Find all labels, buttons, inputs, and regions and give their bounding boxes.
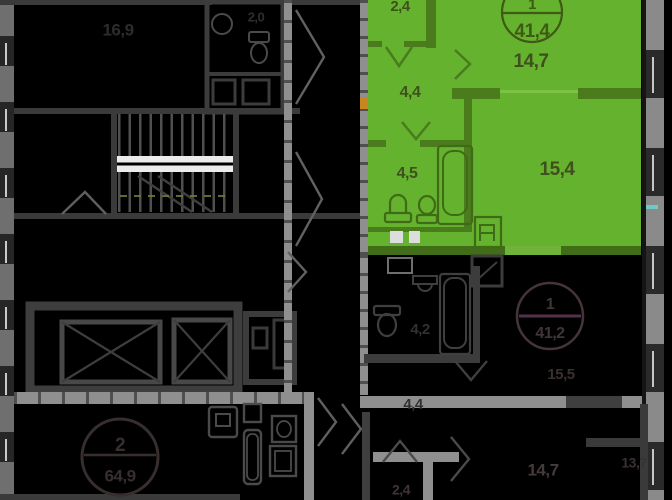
room-area-label: 13,7 [621,455,647,471]
room-area-label: 14,7 [527,460,558,479]
unit-badge-type: 1 [528,0,536,13]
wall-segment [14,108,300,114]
wall-segment [404,41,436,47]
highlighted-apartment [368,0,641,255]
room-area-label: 4,4 [400,84,421,101]
wall-segment [368,140,386,147]
green-unit-left-wall [360,0,368,255]
floor-plan-canvas: 1 41,4 2,4 14,7 4,4 4,5 15,4 16,9 2,0 2 … [0,0,672,500]
unit-badge-type: 2 [115,435,125,456]
balcony-opening [505,246,561,255]
wall-segment [423,452,433,500]
wall-segment [292,213,360,219]
room-area-label: 4,4 [403,396,424,413]
wall-segment [14,392,312,404]
unit-badge-type: 1 [546,296,555,313]
room-area-label: 15,5 [547,366,574,383]
wall-segment [368,41,382,47]
wall-segment [0,0,212,5]
wall-segment [364,354,480,363]
room-area-label: 4,5 [397,165,418,182]
stair-landing-bar [117,156,233,163]
room-area-label: 16,9 [102,20,133,39]
floor-plan: 1 41,4 2,4 14,7 4,4 4,5 15,4 16,9 2,0 2 … [0,0,672,500]
apartment-floor [368,0,641,255]
wall-segment [304,392,314,500]
riser-marker [360,97,368,109]
wall-segment [426,0,436,48]
wall-segment [368,246,641,255]
wall-segment [586,438,644,447]
wall-segment [640,404,648,500]
wall-segment [578,88,641,99]
wall-segment [14,213,300,219]
wall-segment [292,0,360,5]
room-area-label: 14,7 [514,51,549,72]
stair-landing-bar [117,166,233,173]
appliance-icon [390,231,403,243]
wall-segment [452,88,500,99]
wall-segment [111,108,117,219]
room-area-label: 15,4 [540,159,576,180]
appliance-icon [409,231,420,243]
wall-segment [566,396,622,408]
unit-badge-area: 64,9 [104,466,135,485]
left-outer-wall [0,0,14,500]
room-area-label: 2,0 [248,9,265,24]
wall-segment [473,266,480,358]
unit-badge-area: 41,4 [515,21,551,42]
room-area-label: 2,4 [392,482,411,498]
wall-segment [233,108,239,219]
wall-segment [362,412,370,500]
room-area-label: 4,2 [410,321,430,338]
wall-opening-line [500,90,578,93]
vent-marker [646,205,658,209]
room-area-label: 2,4 [390,0,411,15]
unit-badge-area: 41,2 [535,325,565,342]
